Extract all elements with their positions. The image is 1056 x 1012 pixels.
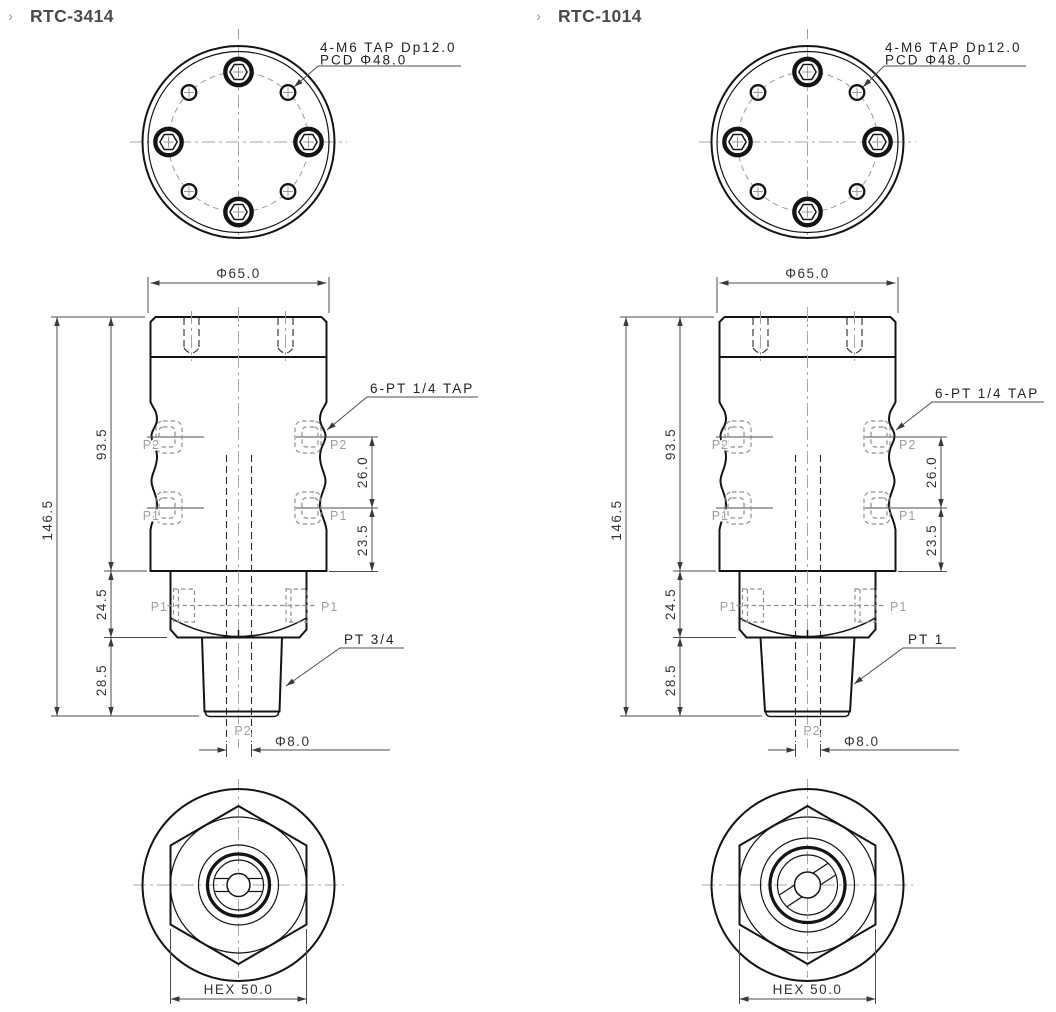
- thread-callout: PT 1: [908, 632, 944, 647]
- hex-port-label-p1-left: P1: [720, 600, 737, 614]
- dim-outer-dia: Φ65.0: [785, 266, 830, 281]
- dim-bore-dia: Φ8.0: [275, 734, 311, 749]
- top-view: 4-M6 TAP Dp12.0 PCD Φ48.0: [130, 29, 461, 238]
- port-label-p1-left: P1: [143, 509, 160, 523]
- port-label-p1-right: P1: [330, 509, 347, 523]
- hex-port-label-p1-left: P1: [151, 600, 168, 614]
- top-callout: 4-M6 TAP Dp12.0 PCD Φ48.0: [292, 40, 461, 89]
- drawing-rtc-3414: › RTC-3414 4-M6 TAP Dp12.0 PCD Φ48.0: [0, 0, 528, 1012]
- port-label-p2-left: P2: [712, 438, 729, 452]
- front-view-dimensions: Φ65.0 146.5 93.5 24.5 28.5 26.0 23.5: [40, 266, 478, 757]
- technical-drawing-sheet: › RTC-3414 4-M6 TAP Dp12.0 PCD Φ48.0: [0, 0, 1056, 1012]
- ports-callout: 6-PT 1/4 TAP: [370, 381, 474, 396]
- dim-port-pitch: 26.0: [355, 456, 370, 488]
- top-callout: 4-M6 TAP Dp12.0 PCD Φ48.0: [861, 40, 1026, 89]
- dim-bore-dia: Φ8.0: [844, 734, 880, 749]
- front-view: P2 P1 P2 P1 P1 P1 P2: [712, 307, 947, 748]
- hex-port-label-p1-right: P1: [321, 600, 338, 614]
- bottom-view: HEX 50.0: [702, 779, 913, 1004]
- front-view-dimensions: Φ65.0 146.5 93.5 24.5 28.5 26.0 23.5 6-P…: [609, 266, 1044, 757]
- dim-hex: HEX 50.0: [773, 982, 843, 997]
- title-bullet: ›: [8, 8, 13, 25]
- hex-port-label-p1-right: P1: [890, 600, 907, 614]
- dim-port-pitch: 26.0: [924, 456, 939, 488]
- dim-stem-height: 28.5: [94, 664, 109, 696]
- top-callout-line2: PCD Φ48.0: [320, 53, 407, 68]
- dim-outer-dia: Φ65.0: [216, 266, 261, 281]
- stem-port-label-p2: P2: [234, 724, 251, 738]
- thread-callout: PT 3/4: [344, 632, 396, 647]
- stem-port-label-p2: P2: [803, 724, 820, 738]
- title-bullet: ›: [536, 8, 541, 25]
- dim-body-height: 93.5: [663, 428, 678, 460]
- drawing-rtc-1014: › RTC-1014 4-M6 TAP Dp12.0 PCD Φ48.0: [528, 0, 1056, 1012]
- bottom-view: HEX 50.0: [133, 779, 344, 1004]
- dim-hex-height: 24.5: [663, 588, 678, 620]
- title-block: › RTC-3414: [8, 6, 114, 26]
- drawing-title: RTC-3414: [30, 6, 114, 26]
- front-view: P2 P1 P2 P1 P1 P1 P2: [143, 307, 378, 748]
- top-callout-line2: PCD Φ48.0: [885, 53, 972, 68]
- port-label-p2-left: P2: [143, 438, 160, 452]
- ports-callout: 6-PT 1/4 TAP: [935, 386, 1039, 401]
- port-label-p2-right: P2: [899, 438, 916, 452]
- dim-hex: HEX 50.0: [204, 982, 274, 997]
- dim-body-height: 93.5: [94, 428, 109, 460]
- dim-hex-height: 24.5: [94, 588, 109, 620]
- dim-port-offset: 23.5: [355, 524, 370, 556]
- dim-total-height: 146.5: [609, 499, 624, 540]
- dim-port-offset: 23.5: [924, 524, 939, 556]
- dim-total-height: 146.5: [40, 499, 55, 540]
- top-view: 4-M6 TAP Dp12.0 PCD Φ48.0: [699, 29, 1026, 238]
- port-label-p1-right: P1: [899, 509, 916, 523]
- port-label-p2-right: P2: [330, 438, 347, 452]
- port-label-p1-left: P1: [712, 509, 729, 523]
- title-block: › RTC-1014: [536, 6, 642, 26]
- dim-stem-height: 28.5: [663, 664, 678, 696]
- drawing-title: RTC-1014: [558, 6, 642, 26]
